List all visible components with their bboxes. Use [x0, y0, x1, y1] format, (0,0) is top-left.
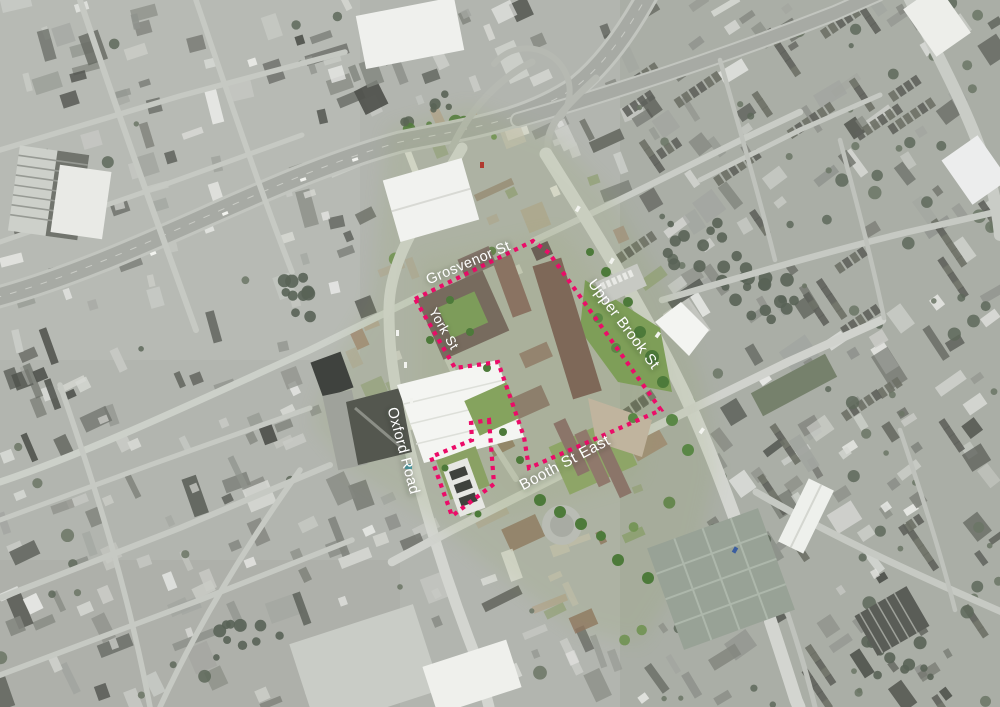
aerial-map: Grosvenor StGrosvenor StYork StYork StOx…: [0, 0, 1000, 707]
aerial-photo: Grosvenor StGrosvenor StYork StYork StOx…: [0, 0, 1000, 707]
